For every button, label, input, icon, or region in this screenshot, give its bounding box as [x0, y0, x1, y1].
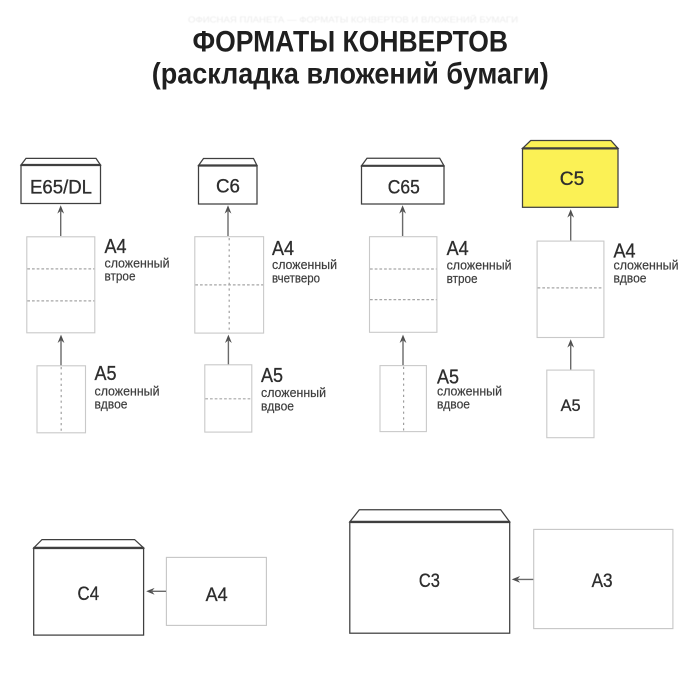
svg-text:E65/DL: E65/DL [30, 177, 92, 198]
svg-text:вдвое: вдвое [437, 396, 470, 411]
svg-text:втрое: втрое [105, 269, 136, 284]
svg-text:С3: С3 [419, 571, 440, 592]
svg-text:А5: А5 [561, 396, 581, 415]
svg-text:вдвое: вдвое [614, 271, 647, 286]
svg-text:вдвое: вдвое [95, 396, 128, 411]
svg-text:А3: А3 [592, 571, 613, 592]
svg-text:вдвое: вдвое [261, 399, 294, 414]
svg-text:С5: С5 [560, 169, 585, 190]
svg-text:ОФИСНАЯ ПЛАНЕТА — ФОРМАТЫ КОНВ: ОФИСНАЯ ПЛАНЕТА — ФОРМАТЫ КОНВЕРТОВ И ВЛ… [188, 14, 518, 25]
svg-text:А5: А5 [261, 365, 283, 387]
svg-text:(раскладка вложений бумаги): (раскладка вложений бумаги) [152, 58, 549, 91]
svg-text:А4: А4 [206, 585, 228, 606]
svg-text:С6: С6 [216, 176, 240, 197]
svg-text:вчетверо: вчетверо [272, 271, 320, 286]
svg-text:ФОРМАТЫ КОНВЕРТОВ: ФОРМАТЫ КОНВЕРТОВ [193, 26, 509, 59]
svg-text:А5: А5 [95, 363, 117, 385]
svg-text:втрое: втрое [447, 271, 478, 286]
svg-text:С4: С4 [78, 584, 100, 605]
svg-text:С65: С65 [388, 177, 420, 198]
